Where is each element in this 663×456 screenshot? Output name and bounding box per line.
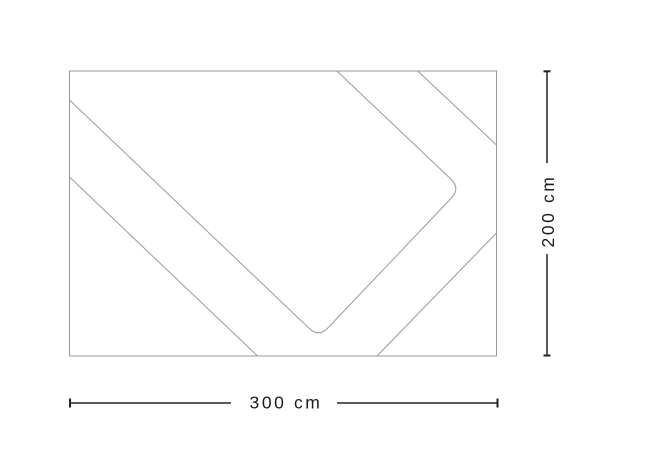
svg-text:200 cm: 200 cm [538, 175, 558, 248]
svg-text:300 cm: 300 cm [250, 393, 323, 413]
